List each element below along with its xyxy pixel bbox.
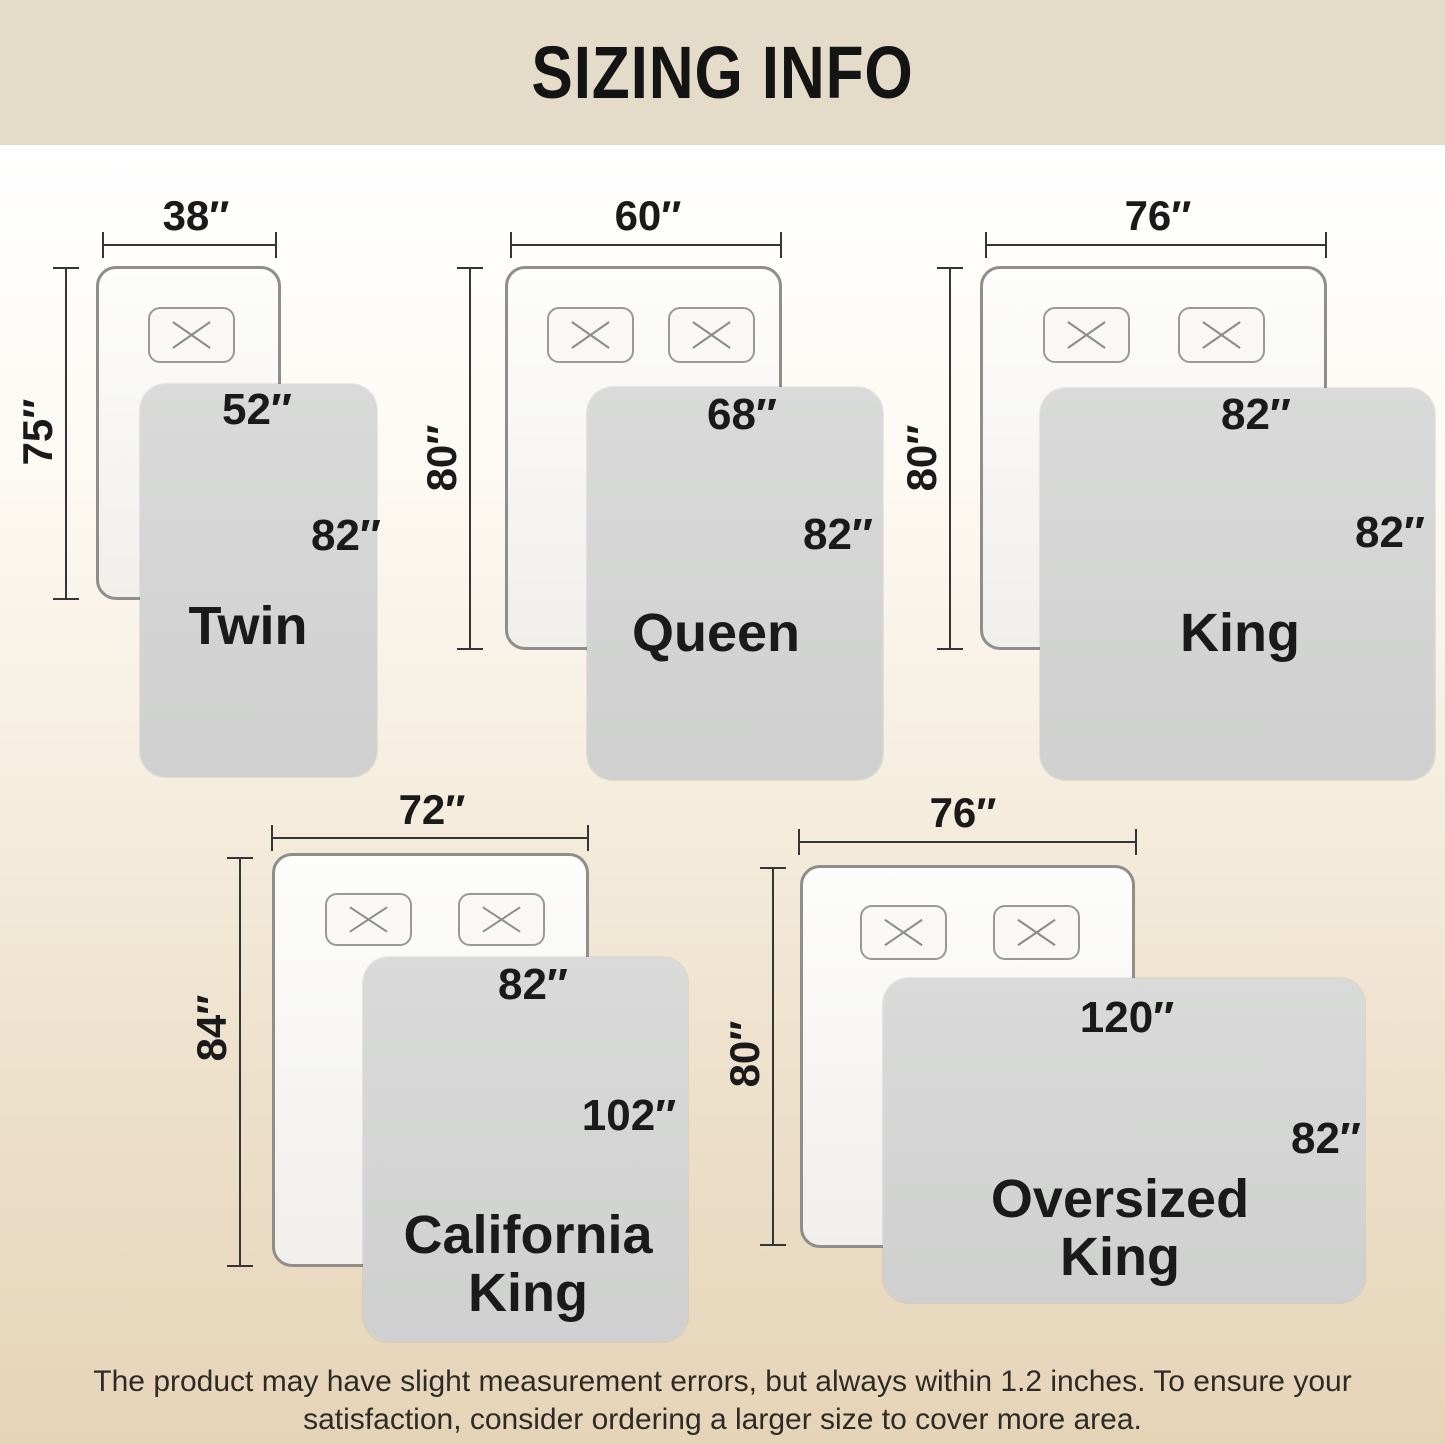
size-group-twin: 38″75″52″82″Twin [0, 0, 1445, 1444]
pillow-icon [1043, 307, 1130, 363]
footer-note: The product may have slight measurement … [0, 1363, 1445, 1439]
bed-oversized-king [800, 865, 1135, 1248]
pillow-icon [547, 307, 634, 363]
size-name-california-king: California King [403, 1206, 652, 1322]
blanket-king [1040, 388, 1435, 780]
pillow-icon [993, 905, 1080, 960]
blanket-width-label: 82″ [498, 962, 568, 1008]
blanket-height-label: 82″ [803, 512, 873, 558]
pillow-x-icon [150, 309, 233, 361]
pillow-icon [1178, 307, 1265, 363]
height-dimension-label: 80″ [900, 425, 944, 492]
blanket-height-label: 82″ [1291, 1116, 1361, 1162]
size-group-oversized-king: 76″80″120″82″Oversized King [0, 0, 1445, 1444]
width-dimension-line [271, 837, 589, 839]
size-group-king: 76″80″82″82″King [0, 0, 1445, 1444]
width-dimension-label: 38″ [163, 194, 230, 238]
height-dimension-line [949, 267, 951, 650]
sizing-infographic: SIZING INFO 38″75″52″82″Twin60″80″68″82″… [0, 0, 1445, 1444]
pillow-x-icon [862, 907, 945, 958]
height-dimension-line [772, 867, 774, 1246]
pillow-x-icon [327, 895, 410, 944]
blanket-width-label: 52″ [222, 387, 292, 433]
size-name-king: King [1180, 604, 1300, 662]
blanket-oversized-king [883, 978, 1365, 1303]
pillow-icon [148, 307, 235, 363]
blanket-california-king [363, 957, 688, 1342]
height-dimension-label: 75″ [16, 399, 60, 466]
width-dimension-line [510, 244, 782, 246]
size-name-twin: Twin [189, 597, 308, 655]
blanket-width-label: 120″ [1080, 995, 1175, 1041]
size-name-oversized-king: Oversized King [991, 1170, 1249, 1286]
pillow-x-icon [549, 309, 632, 361]
size-group-california-king: 72″84″82″102″California King [0, 0, 1445, 1444]
pillow-icon [860, 905, 947, 960]
pillow-icon [458, 893, 545, 946]
pillow-icon [325, 893, 412, 946]
pillow-x-icon [995, 907, 1078, 958]
blanket-width-label: 68″ [707, 392, 777, 438]
pillow-x-icon [460, 895, 543, 944]
blanket-height-label: 102″ [582, 1093, 677, 1139]
height-dimension-label: 80″ [723, 1021, 767, 1088]
bed-twin [96, 266, 281, 600]
width-dimension-label: 72″ [399, 788, 466, 832]
bed-california-king [272, 853, 589, 1267]
pillow-icon [668, 307, 755, 363]
size-group-queen: 60″80″68″82″Queen [0, 0, 1445, 1444]
blanket-queen [587, 387, 883, 780]
blanket-twin [140, 384, 377, 777]
height-dimension-label: 84″ [190, 995, 234, 1062]
pillow-x-icon [670, 309, 753, 361]
height-dimension-line [469, 267, 471, 650]
width-dimension-label: 60″ [615, 194, 682, 238]
width-dimension-line [798, 841, 1137, 843]
height-dimension-line [239, 857, 241, 1267]
diagram-canvas: 38″75″52″82″Twin60″80″68″82″Queen76″80″8… [0, 0, 1445, 1444]
size-name-queen: Queen [632, 604, 800, 662]
pillow-x-icon [1180, 309, 1263, 361]
blanket-height-label: 82″ [1355, 510, 1425, 556]
blanket-height-label: 82″ [311, 513, 381, 559]
height-dimension-label: 80″ [420, 425, 464, 492]
pillow-x-icon [1045, 309, 1128, 361]
blanket-width-label: 82″ [1221, 392, 1291, 438]
width-dimension-line [985, 244, 1327, 246]
width-dimension-label: 76″ [1125, 194, 1192, 238]
height-dimension-line [65, 267, 67, 600]
bed-king [980, 266, 1327, 650]
width-dimension-line [102, 244, 277, 246]
bed-queen [505, 266, 782, 650]
width-dimension-label: 76″ [930, 791, 997, 835]
